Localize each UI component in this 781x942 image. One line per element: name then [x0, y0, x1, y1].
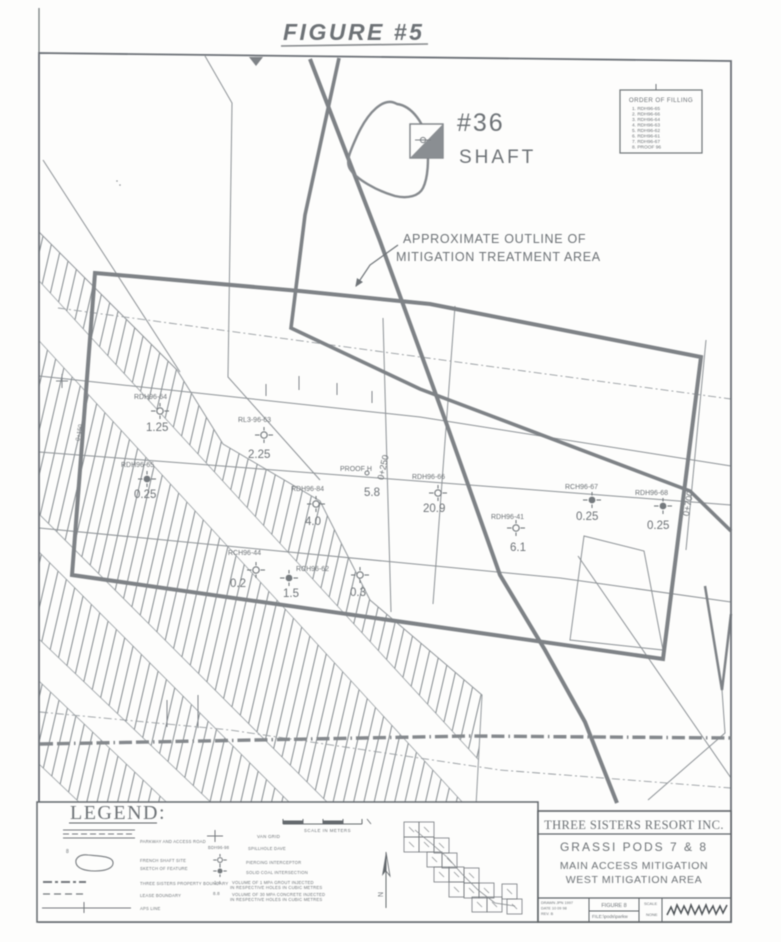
- svg-text:APS LINE: APS LINE: [140, 906, 160, 911]
- svg-text:DRAWN JPN 1997: DRAWN JPN 1997: [541, 901, 573, 905]
- svg-text:0.25: 0.25: [134, 489, 156, 501]
- svg-text:RCH96-62: RCH96-62: [296, 566, 329, 573]
- svg-text:RDH96-66: RDH96-66: [412, 474, 445, 481]
- svg-text:7. RDH96-67: 7. RDH96-67: [632, 139, 660, 145]
- svg-text:PARKWAY AND ACCESS ROAD: PARKWAY AND ACCESS ROAD: [140, 839, 206, 844]
- svg-text:RL3-96-63: RL3-96-63: [238, 417, 271, 424]
- svg-text:RDH96-65: RDH96-65: [121, 462, 154, 469]
- svg-text:6.1: 6.1: [510, 542, 526, 554]
- svg-text:2.25: 2.25: [248, 449, 270, 461]
- svg-text:8.8: 8.8: [213, 891, 220, 896]
- svg-text:IN RESPECTIVE HOLES IN CUBIC M: IN RESPECTIVE HOLES IN CUBIC METRES: [230, 897, 322, 902]
- svg-text:WEST MITIGATION AREA: WEST MITIGATION AREA: [566, 874, 702, 886]
- svg-text:RDH96-41: RDH96-41: [491, 514, 524, 521]
- svg-text:5.8: 5.8: [364, 487, 380, 499]
- svg-text:SCALE IN METERS: SCALE IN METERS: [304, 828, 351, 833]
- svg-text:0.25: 0.25: [576, 511, 598, 523]
- svg-text:PROOF H: PROOF H: [340, 466, 372, 473]
- svg-text:1. RDH96-65: 1. RDH96-65: [632, 106, 660, 112]
- svg-text:VAN GRID: VAN GRID: [257, 834, 281, 839]
- svg-text:5. RDH96-62: 5. RDH96-62: [632, 128, 660, 134]
- svg-text:MAIN ACCESS MITIGATION: MAIN ACCESS MITIGATION: [560, 860, 708, 872]
- svg-text:0.3: 0.3: [350, 587, 366, 599]
- svg-text:BDH96-98: BDH96-98: [208, 845, 230, 850]
- svg-text:RCH96-44: RCH96-44: [228, 550, 261, 557]
- svg-text:20.9: 20.9: [423, 503, 445, 515]
- svg-text:RDH96-84: RDH96-84: [291, 486, 324, 493]
- svg-text:#36: #36: [457, 109, 505, 137]
- svg-text:FIGURE 8: FIGURE 8: [601, 903, 626, 909]
- svg-text:SKETCH OF FEATURE: SKETCH OF FEATURE: [140, 866, 188, 871]
- svg-text:FRENCH SHAFT SITE: FRENCH SHAFT SITE: [140, 858, 186, 863]
- svg-text:0+250: 0+250: [376, 454, 391, 481]
- svg-text:2. RDH96-66: 2. RDH96-66: [632, 112, 660, 118]
- svg-text:8. PROOF 96: 8. PROOF 96: [632, 145, 661, 151]
- svg-text:NONE: NONE: [646, 912, 658, 917]
- svg-text:8: 8: [66, 849, 69, 855]
- svg-text:THREE SISTERS RESORT INC.: THREE SISTERS RESORT INC.: [544, 818, 724, 832]
- svg-text:PIERCING INTERCEPTOR: PIERCING INTERCEPTOR: [246, 860, 301, 865]
- svg-text:MITIGATION TREATMENT AREA: MITIGATION TREATMENT AREA: [396, 250, 601, 264]
- svg-text:FIGURE #5: FIGURE #5: [283, 19, 424, 45]
- svg-text:4. RDH96-63: 4. RDH96-63: [632, 123, 660, 129]
- svg-text:RCH96-67: RCH96-67: [565, 484, 598, 491]
- svg-text:RDH96-68: RDH96-68: [635, 490, 668, 497]
- svg-text:3. RDH96-64: 3. RDH96-64: [632, 117, 660, 123]
- svg-text:RDH96-64: RDH96-64: [134, 394, 167, 401]
- svg-text:APPROXIMATE OUTLINE OF: APPROXIMATE OUTLINE OF: [403, 232, 586, 246]
- svg-text:SHAFT: SHAFT: [459, 147, 536, 168]
- svg-text:DATE 10 09 98: DATE 10 09 98: [541, 907, 567, 911]
- svg-text:0.2: 0.2: [230, 578, 246, 590]
- svg-text:1.4: 1.4: [214, 880, 221, 885]
- svg-text:1.25: 1.25: [146, 422, 168, 434]
- svg-text:LEASE BOUNDARY: LEASE BOUNDARY: [140, 893, 181, 898]
- svg-text:N: N: [378, 892, 385, 897]
- svg-text:IN RESPECTIVE HOLES IN CUBIC M: IN RESPECTIVE HOLES IN CUBIC METRES: [230, 885, 322, 890]
- svg-text:ORDER OF FILLING: ORDER OF FILLING: [629, 97, 693, 104]
- svg-text:0.25: 0.25: [647, 520, 669, 532]
- svg-text:6. RDH96-61: 6. RDH96-61: [632, 134, 660, 140]
- svg-text:LEGEND:: LEGEND:: [70, 802, 166, 824]
- svg-text:GRASSI PODS 7 & 8: GRASSI PODS 7 & 8: [560, 840, 708, 854]
- svg-text:SPILLHOLE DAVE: SPILLHOLE DAVE: [248, 846, 286, 851]
- svg-text:SCALE: SCALE: [644, 901, 657, 906]
- svg-text:1.5: 1.5: [283, 588, 299, 600]
- svg-text:REV. B: REV. B: [541, 912, 554, 916]
- svg-text:FILE:\pods\parkw: FILE:\pods\parkw: [592, 914, 628, 919]
- svg-text:4.0: 4.0: [305, 516, 321, 528]
- svg-text:SOLID COAL INTERSECTION: SOLID COAL INTERSECTION: [246, 870, 308, 875]
